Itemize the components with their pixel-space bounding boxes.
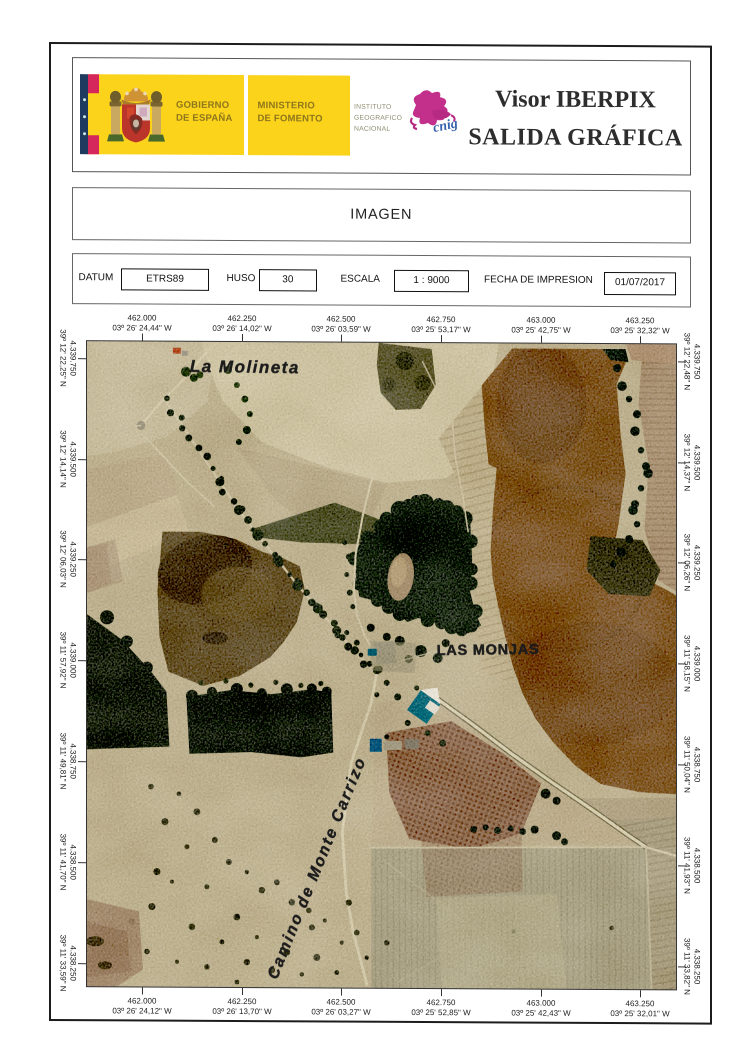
svg-text:La Molineta: La Molineta: [189, 356, 299, 377]
svg-text:LAS MONJAS: LAS MONJAS: [436, 641, 539, 658]
